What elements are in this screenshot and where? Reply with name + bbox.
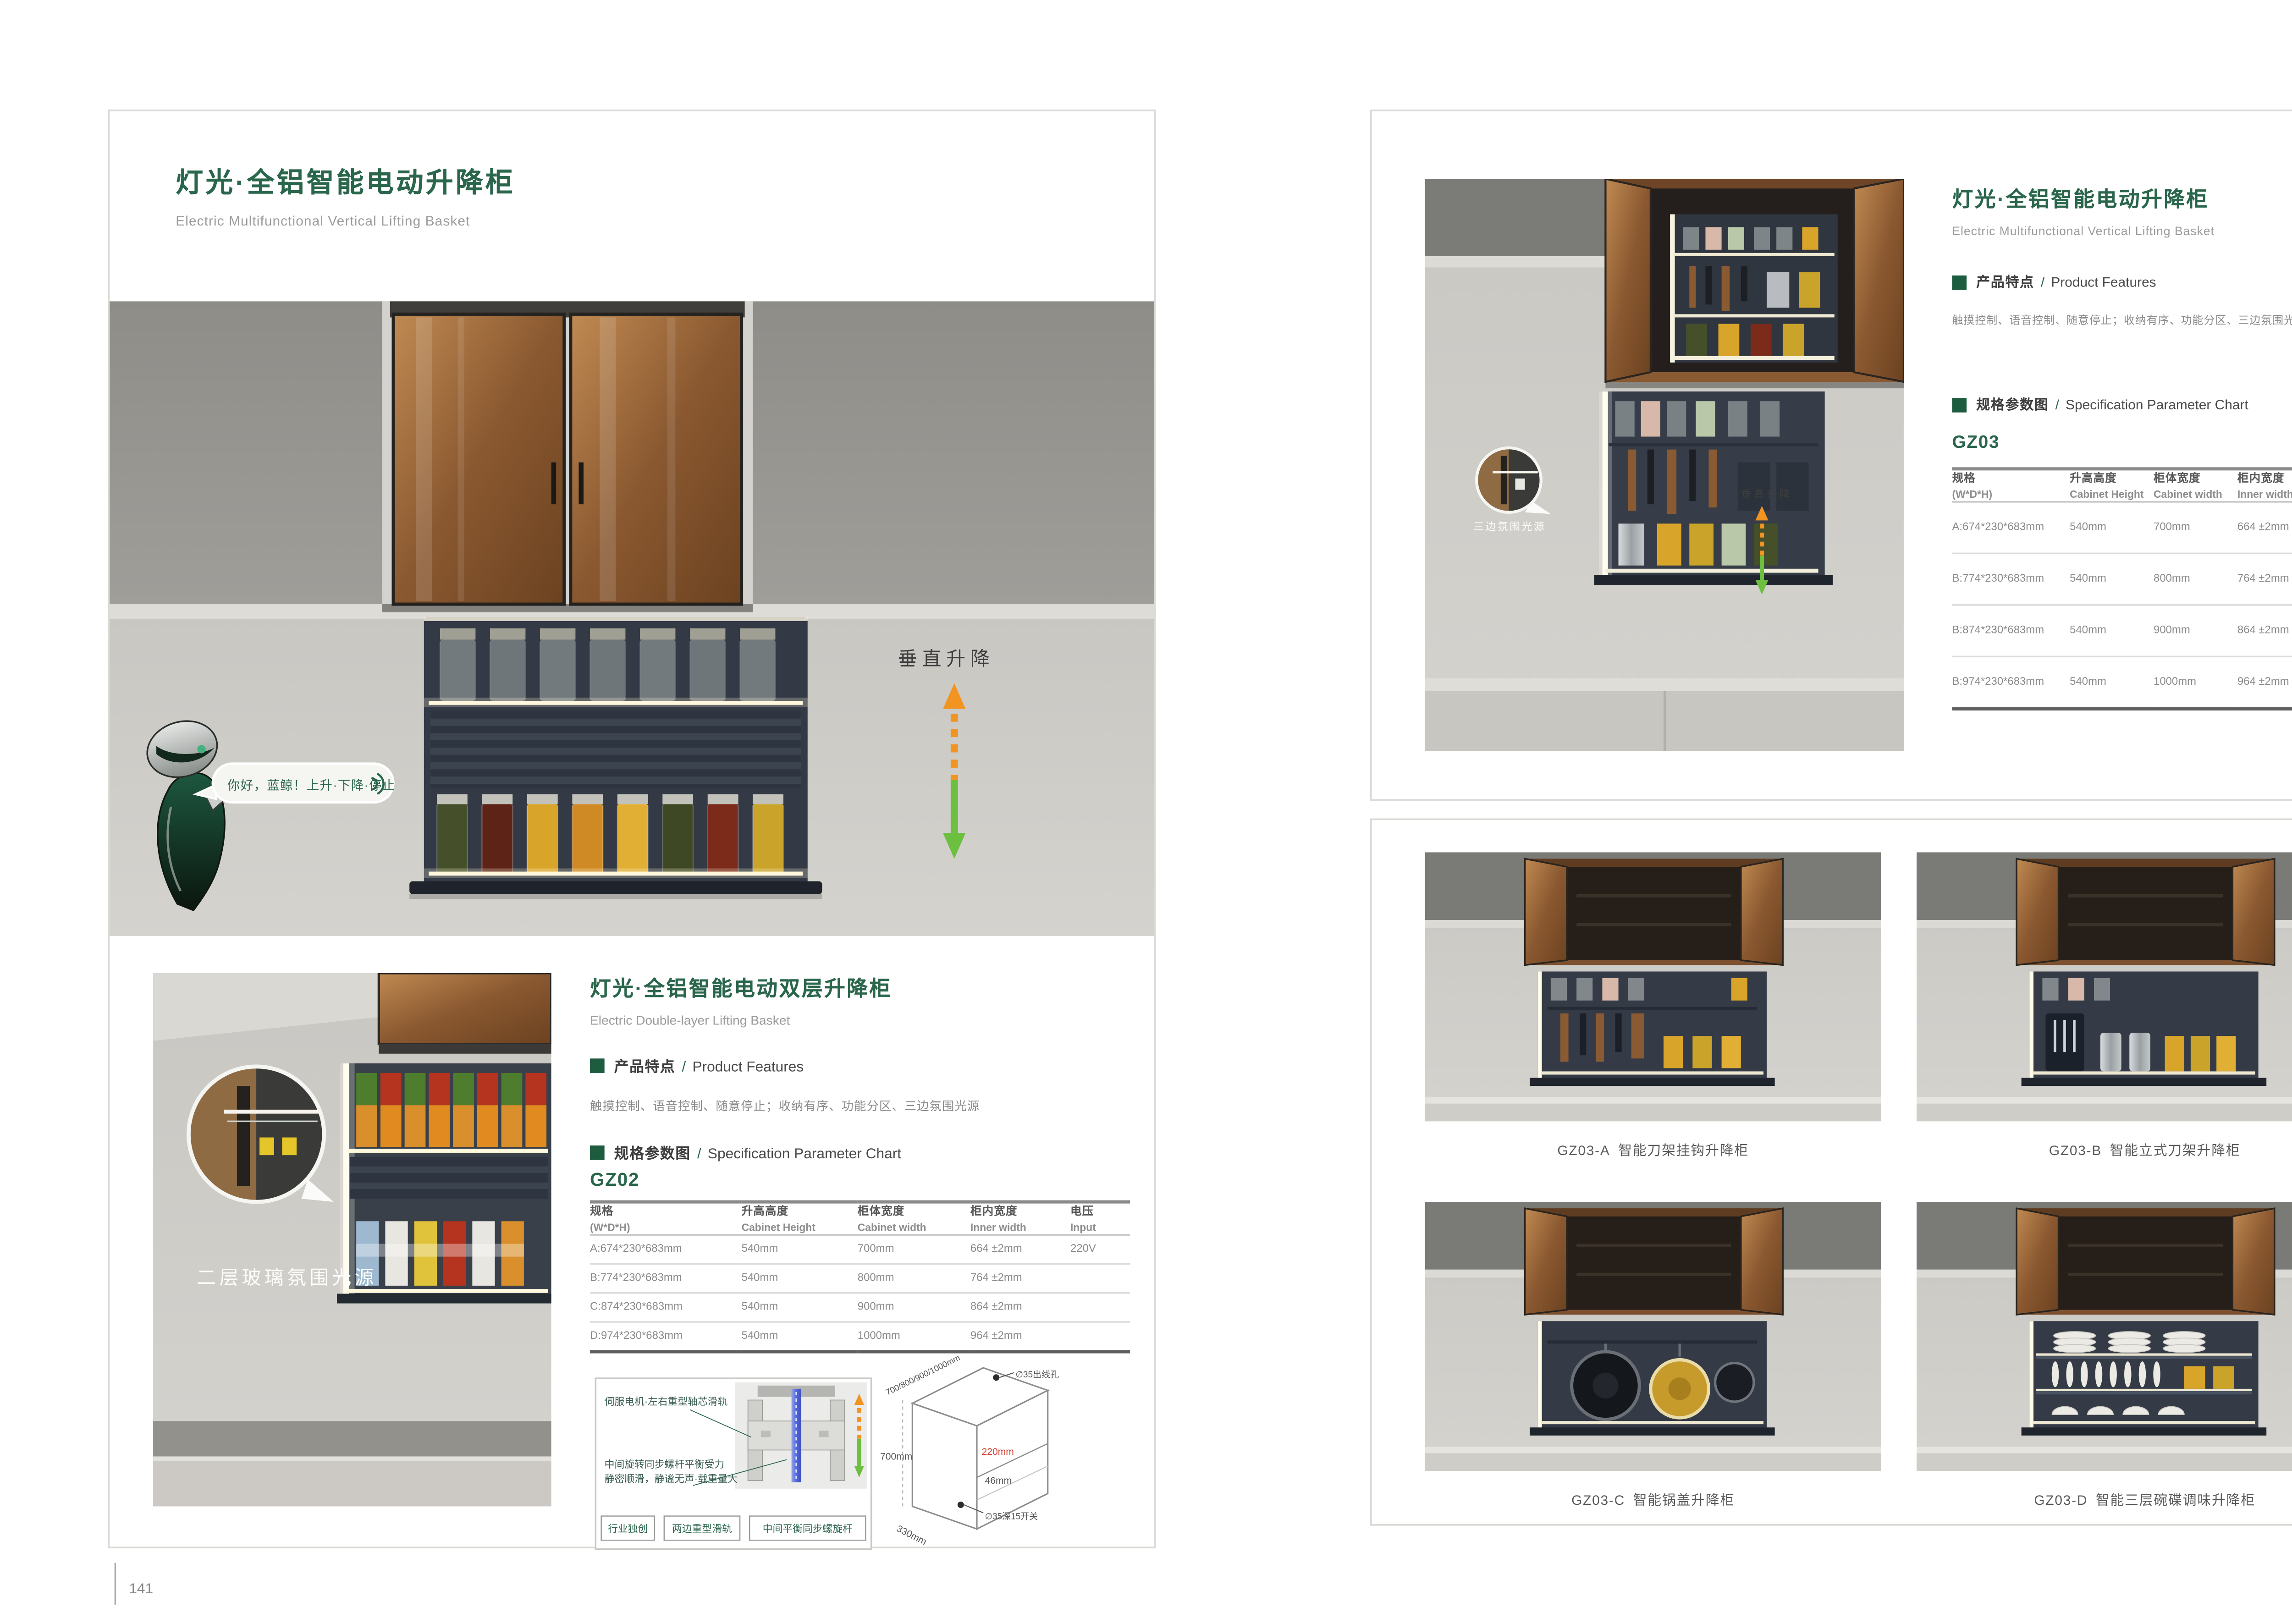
spec-header-cell: 柜体宽度Cabinet width bbox=[2154, 469, 2237, 502]
product-card-gz03a: GZ03-A智能刀架挂钩升降柜 bbox=[1425, 852, 1881, 1160]
spec-cell: 800mm bbox=[858, 1264, 970, 1293]
spec-header-cell: 规格(W*D*H) bbox=[1952, 469, 2070, 502]
green-square-icon bbox=[1952, 397, 1967, 412]
page-title: 灯光·全铝智能电动升降柜 bbox=[176, 160, 515, 200]
spec-header-cell: 升高高度Cabinet Height bbox=[2070, 469, 2154, 502]
spec-cell: 700mm bbox=[2154, 502, 2237, 553]
mech-label-top: 伺服电机·左右重型轴芯滑轨 bbox=[605, 1396, 728, 1407]
spec-cell: 540mm bbox=[742, 1293, 858, 1322]
features-heading: 产品特点 / Product Features bbox=[1952, 272, 2156, 292]
mech-label-mid-1: 中间旋转同步螺杆平衡受力 bbox=[605, 1459, 724, 1470]
spec-cell: 964 ±2mm bbox=[970, 1322, 1070, 1352]
spec-cell: 540mm bbox=[2070, 502, 2154, 553]
features-heading-en: Product Features bbox=[2051, 274, 2156, 290]
gz03a-photo bbox=[1425, 852, 1881, 1121]
spec-header-cell: 柜内宽度Inner width bbox=[2237, 469, 2292, 502]
model-gz02: GZ02 bbox=[590, 1171, 639, 1190]
spec-cell: 900mm bbox=[2154, 605, 2237, 656]
product-card-gz03c: GZ03-C智能锅盖升降柜 bbox=[1425, 1202, 1881, 1509]
spec-row: A:674*230*683mm540mm700mm664 ±2mm220V bbox=[590, 1235, 1130, 1264]
page-number-left: 141 bbox=[129, 1580, 153, 1596]
features-heading-cn: 产品特点 bbox=[614, 1055, 676, 1076]
gz03-photo: 三边氛围光源 垂直升降 bbox=[1425, 179, 1904, 751]
gz03b-photo bbox=[1917, 852, 2292, 1121]
spec-row: D:974*230*683mm540mm1000mm964 ±2mm bbox=[590, 1322, 1130, 1352]
spec-header-cell: 电压Input bbox=[1070, 1202, 1130, 1235]
mech-tags: 行业独创 两边重型滑轨 中间平衡同步螺旋杆 bbox=[601, 1516, 866, 1541]
photo-callout-label: 二层玻璃氛围光源 bbox=[197, 1266, 377, 1288]
spec-cell: 864 ±2mm bbox=[970, 1293, 1070, 1322]
spec-cell: A:674*230*683mm bbox=[1952, 502, 2070, 553]
mech-tag-2: 中间平衡同步螺旋杆 bbox=[763, 1523, 853, 1535]
spec-row: A:674*230*683mm540mm700mm664 ±2mm220V bbox=[1952, 502, 2292, 553]
spec-heading-slash: / bbox=[2055, 396, 2059, 413]
product-name: 智能三层碗碟调味升降柜 bbox=[2096, 1492, 2255, 1508]
dim-left: 700mm bbox=[880, 1452, 912, 1462]
spec-cell: 664 ±2mm bbox=[970, 1235, 1070, 1264]
gz03c-photo bbox=[1425, 1202, 1881, 1471]
spec-cell bbox=[1070, 1264, 1130, 1293]
dim-inner: 220mm bbox=[982, 1447, 1014, 1457]
spec-cell: 964 ±2mm bbox=[2237, 656, 2292, 709]
speech-bubble: 你好，蓝鲸！上升·下降·停止 bbox=[195, 764, 395, 802]
product-caption: GZ03-A智能刀架挂钩升降柜 bbox=[1425, 1141, 1881, 1160]
model-gz03: GZ03 bbox=[1952, 434, 2000, 453]
product-code: GZ03-B bbox=[2049, 1142, 2102, 1158]
left-page: 灯光·全铝智能电动升降柜 Electric Multifunctional Ve… bbox=[108, 110, 1156, 1548]
double-layer-photo: 二层玻璃氛围光源 bbox=[153, 973, 551, 1506]
features-heading-slash: / bbox=[682, 1058, 686, 1074]
product-code: GZ03-A bbox=[1557, 1142, 1610, 1158]
gz03d-photo bbox=[1917, 1202, 2292, 1471]
spec-cell: A:674*230*683mm bbox=[590, 1235, 742, 1264]
spec-cell: 864 ±2mm bbox=[2237, 605, 2292, 656]
spec-cell: 1000mm bbox=[2154, 656, 2237, 709]
spec-heading-slash: / bbox=[697, 1145, 701, 1161]
spec-cell: 220V bbox=[1070, 1235, 1130, 1264]
spec-cell: 764 ±2mm bbox=[2237, 553, 2292, 605]
gz03-spec-table: 规格(W*D*H)升高高度Cabinet Height柜体宽度Cabinet w… bbox=[1952, 467, 2292, 710]
spec-cell: 540mm bbox=[742, 1264, 858, 1293]
folio-divider bbox=[115, 1563, 116, 1604]
spec-row: B:774*230*683mm540mm800mm764 ±2mm bbox=[590, 1264, 1130, 1293]
product-code: GZ03-D bbox=[2034, 1492, 2088, 1508]
spec-row: B:774*230*683mm540mm800mm764 ±2mm bbox=[1952, 553, 2292, 605]
right-page-top: 三边氛围光源 垂直升降 灯光·全铝智能电动升降柜 Electric Multif… bbox=[1370, 110, 2292, 801]
spec-heading-en: Specification Parameter Chart bbox=[708, 1145, 901, 1161]
spec-header-cell: 柜体宽度Cabinet width bbox=[858, 1202, 970, 1235]
features-heading: 产品特点 / Product Features bbox=[590, 1055, 804, 1076]
page-subtitle: Electric Multifunctional Vertical Liftin… bbox=[1952, 224, 2215, 239]
right-page-bottom: GZ03-A智能刀架挂钩升降柜 bbox=[1370, 819, 2292, 1526]
spec-cell: 540mm bbox=[2070, 656, 2154, 709]
green-square-icon bbox=[1952, 275, 1967, 289]
hole-bottom-label: ∅35深15开关 bbox=[985, 1512, 1038, 1522]
features-heading-en: Product Features bbox=[692, 1058, 804, 1074]
dim-gap: 46mm bbox=[985, 1475, 1012, 1486]
catalog-spread: 灯光·全铝智能电动升降柜 Electric Multifunctional Ve… bbox=[0, 0, 2292, 1624]
dim-depth: 330mm bbox=[895, 1523, 928, 1547]
mech-tag-0: 行业独创 bbox=[608, 1523, 648, 1535]
spec-cell bbox=[1070, 1293, 1130, 1322]
product-name: 智能立式刀架升降柜 bbox=[2110, 1142, 2241, 1158]
spec-cell: 700mm bbox=[858, 1235, 970, 1264]
spec-heading: 规格参数图 / Specification Parameter Chart bbox=[590, 1142, 901, 1163]
spec-heading: 规格参数图 / Specification Parameter Chart bbox=[1952, 395, 2248, 414]
lift-label: 垂直升降 bbox=[1741, 488, 1793, 500]
mech-tag-1: 两边重型滑轨 bbox=[672, 1523, 732, 1535]
product-card-gz03b: GZ03-B智能立式刀架升降柜 bbox=[1917, 852, 2292, 1160]
gz02-spec-table: 规格(W*D*H)升高高度Cabinet Height柜体宽度Cabinet w… bbox=[590, 1200, 1130, 1354]
spec-header-cell: 规格(W*D*H) bbox=[590, 1202, 742, 1235]
spec-cell: 540mm bbox=[742, 1235, 858, 1264]
spec-cell: C:874*230*683mm bbox=[590, 1293, 742, 1322]
section2-title: 灯光·全铝智能电动双层升降柜 bbox=[590, 971, 892, 1002]
spec-cell: B:874*230*683mm bbox=[1952, 605, 2070, 656]
features-text: 触摸控制、语音控制、随意停止；收纳有序、功能分区、三边氛围光源 bbox=[1952, 311, 2292, 327]
spec-cell: 540mm bbox=[2070, 605, 2154, 656]
product-name: 智能刀架挂钩升降柜 bbox=[1618, 1142, 1749, 1158]
product-caption: GZ03-B智能立式刀架升降柜 bbox=[1917, 1141, 2292, 1160]
spec-header-row: 规格(W*D*H)升高高度Cabinet Height柜体宽度Cabinet w… bbox=[1952, 469, 2292, 502]
photo-callout-label: 三边氛围光源 bbox=[1473, 520, 1546, 532]
mechanism-diagram-box: 伺服电机·左右重型轴芯滑轨 中间旋转同步螺杆平衡受力 静密顺滑，静谧无声·载重量… bbox=[595, 1377, 872, 1550]
section2-subtitle: Electric Double-layer Lifting Basket bbox=[590, 1013, 790, 1028]
spec-cell: B:974*230*683mm bbox=[1952, 656, 2070, 709]
product-code: GZ03-C bbox=[1571, 1492, 1625, 1508]
product-caption: GZ03-D智能三层碗碟调味升降柜 bbox=[1917, 1490, 2292, 1509]
speech-text: 你好，蓝鲸！上升·下降·停止 bbox=[227, 778, 396, 792]
spec-header-cell: 柜内宽度Inner width bbox=[970, 1202, 1070, 1235]
spec-row: C:874*230*683mm540mm900mm864 ±2mm bbox=[590, 1293, 1130, 1322]
spec-cell: 764 ±2mm bbox=[970, 1264, 1070, 1293]
spec-row: B:874*230*683mm540mm900mm864 ±2mm bbox=[1952, 605, 2292, 656]
green-square-icon bbox=[590, 1145, 605, 1160]
mechanism-diagram: 伺服电机·左右重型轴芯滑轨 中间旋转同步螺杆平衡受力 静密顺滑，静谧无声·载重量… bbox=[596, 1379, 871, 1548]
spec-cell: 900mm bbox=[858, 1293, 970, 1322]
green-square-icon bbox=[590, 1058, 605, 1073]
spec-header-row: 规格(W*D*H)升高高度Cabinet Height柜体宽度Cabinet w… bbox=[590, 1202, 1130, 1235]
spec-cell: 664 ±2mm bbox=[2237, 502, 2292, 553]
hero-lift-label: 垂直升降 bbox=[898, 648, 995, 670]
cabinet-dimension-diagram: 700/800/900/1000mm 700mm 330mm 220mm 46m… bbox=[880, 1352, 1074, 1548]
hole-top-label: ∅35出线孔 bbox=[1015, 1370, 1059, 1380]
product-card-gz03d: GZ03-D智能三层碗碟调味升降柜 bbox=[1917, 1202, 2292, 1509]
features-heading-cn: 产品特点 bbox=[1976, 272, 2034, 292]
spec-cell: 540mm bbox=[742, 1322, 858, 1352]
features-heading-slash: / bbox=[2041, 274, 2044, 290]
page-title: 灯光·全铝智能电动升降柜 bbox=[1952, 182, 2209, 213]
spec-row: B:974*230*683mm540mm1000mm964 ±2mm bbox=[1952, 656, 2292, 709]
spec-cell: B:774*230*683mm bbox=[1952, 553, 2070, 605]
spec-cell: D:974*230*683mm bbox=[590, 1322, 742, 1352]
spec-cell: 540mm bbox=[2070, 553, 2154, 605]
spec-cell bbox=[1070, 1322, 1130, 1352]
page-subtitle: Electric Multifunctional Vertical Liftin… bbox=[176, 213, 470, 229]
spec-cell: 1000mm bbox=[858, 1322, 970, 1352]
spec-heading-en: Specification Parameter Chart bbox=[2066, 396, 2248, 413]
product-caption: GZ03-C智能锅盖升降柜 bbox=[1425, 1490, 1881, 1509]
spec-heading-cn: 规格参数图 bbox=[614, 1142, 691, 1163]
features-text: 触摸控制、语音控制、随意停止；收纳有序、功能分区、三边氛围光源 bbox=[590, 1097, 980, 1115]
spec-cell: 800mm bbox=[2154, 553, 2237, 605]
hero-photo: 垂直升降 你好，蓝鲸！上 bbox=[110, 301, 1154, 936]
product-name: 智能锅盖升降柜 bbox=[1633, 1492, 1735, 1508]
spec-cell: B:774*230*683mm bbox=[590, 1264, 742, 1293]
spec-header-cell: 升高高度Cabinet Height bbox=[742, 1202, 858, 1235]
spec-heading-cn: 规格参数图 bbox=[1976, 395, 2049, 414]
